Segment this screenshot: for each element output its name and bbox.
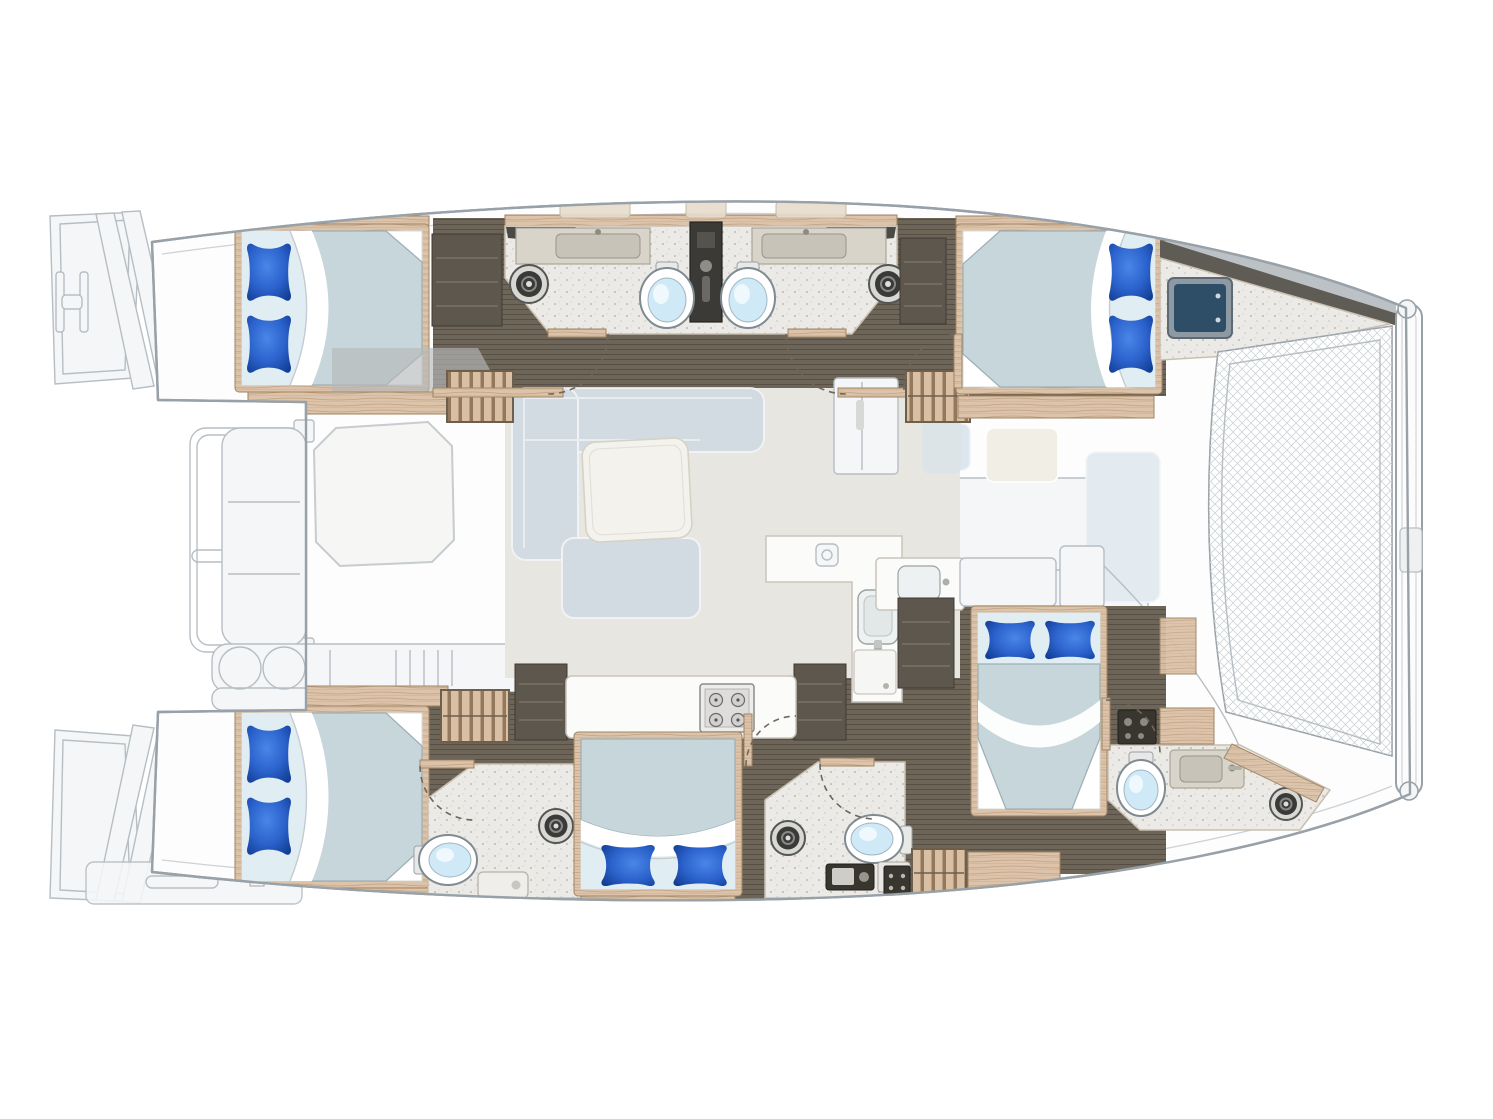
storage-box [1160, 708, 1214, 744]
bed-duvet [581, 739, 735, 837]
foredeck-pad-2 [986, 428, 1058, 482]
washbasin-counter-left [516, 228, 650, 264]
vanity-module [826, 864, 874, 890]
pillow [247, 726, 291, 783]
lower-aft-berth [235, 706, 429, 888]
sole-plank [968, 852, 1060, 896]
galley-fwd-faucet-icon [943, 579, 950, 586]
companionway-steps-lower-aft [441, 690, 509, 742]
washbasin-tray-dot [512, 881, 521, 890]
deck-fitting-2 [686, 196, 726, 218]
foredeck-box [1160, 618, 1196, 674]
pillow [985, 621, 1035, 659]
shower-drain-icon [771, 821, 805, 855]
electrical-panel [1118, 710, 1156, 744]
door-leaf [744, 714, 752, 766]
faucet-icon [803, 229, 809, 235]
bed-duvet [963, 231, 1106, 387]
pillow [247, 316, 291, 373]
appliance-panel-dot [883, 683, 889, 689]
salon-galley [505, 378, 964, 740]
head-ghost-panel-2 [1060, 546, 1104, 608]
cockpit-table [314, 422, 454, 566]
faucet-icon [595, 229, 601, 235]
door-leaf [954, 334, 962, 388]
catamaran-floorplan-diagram [0, 0, 1493, 1119]
galley-soap-dish [816, 544, 838, 566]
coffee-table [581, 437, 692, 542]
upper-forward-berth [956, 224, 1162, 394]
upper-aft-shelf [248, 392, 448, 414]
electrical-panel [884, 866, 910, 896]
galley-fwd-sink [898, 566, 940, 600]
crossbeam-fitting [1400, 528, 1422, 572]
appliance-panel [854, 650, 896, 694]
shower-drain-icon [510, 265, 548, 303]
upper-bathrooms [505, 222, 907, 334]
lower-fwd-wardrobe [898, 598, 954, 688]
upper-fwd-wardrobe [900, 238, 946, 324]
galley-island [566, 676, 796, 738]
upper-fwd-shelf [958, 396, 1154, 418]
deck-fitting-3 [776, 202, 846, 218]
lower-mid-berth [574, 732, 742, 896]
door-leaf [1102, 698, 1110, 750]
pillow [673, 845, 726, 886]
door-leaf [420, 760, 474, 768]
salon-sill-left [433, 388, 563, 397]
pillow [1109, 244, 1153, 301]
pillow [1045, 621, 1095, 659]
shower-drain-icon [539, 809, 573, 843]
pillow [247, 798, 291, 855]
pillow [247, 244, 291, 301]
upper-aft-wardrobe [432, 234, 502, 326]
cockpit-bench [222, 428, 306, 646]
pillow [1109, 316, 1153, 373]
door-leaf [548, 329, 606, 337]
lower-mid-shelf-bottom [581, 896, 735, 910]
deck-hatch [1168, 278, 1232, 338]
door-leaf [820, 758, 874, 766]
head-ghost-panel-1 [960, 558, 1056, 606]
shower-column [690, 222, 722, 322]
door-leaf [788, 329, 846, 337]
lower-forward-berth [971, 606, 1107, 816]
salon-seat-cushion [922, 420, 962, 474]
pillow [601, 845, 654, 886]
floorplan-canvas [0, 0, 1493, 1119]
washbasin-counter-right [752, 228, 886, 264]
